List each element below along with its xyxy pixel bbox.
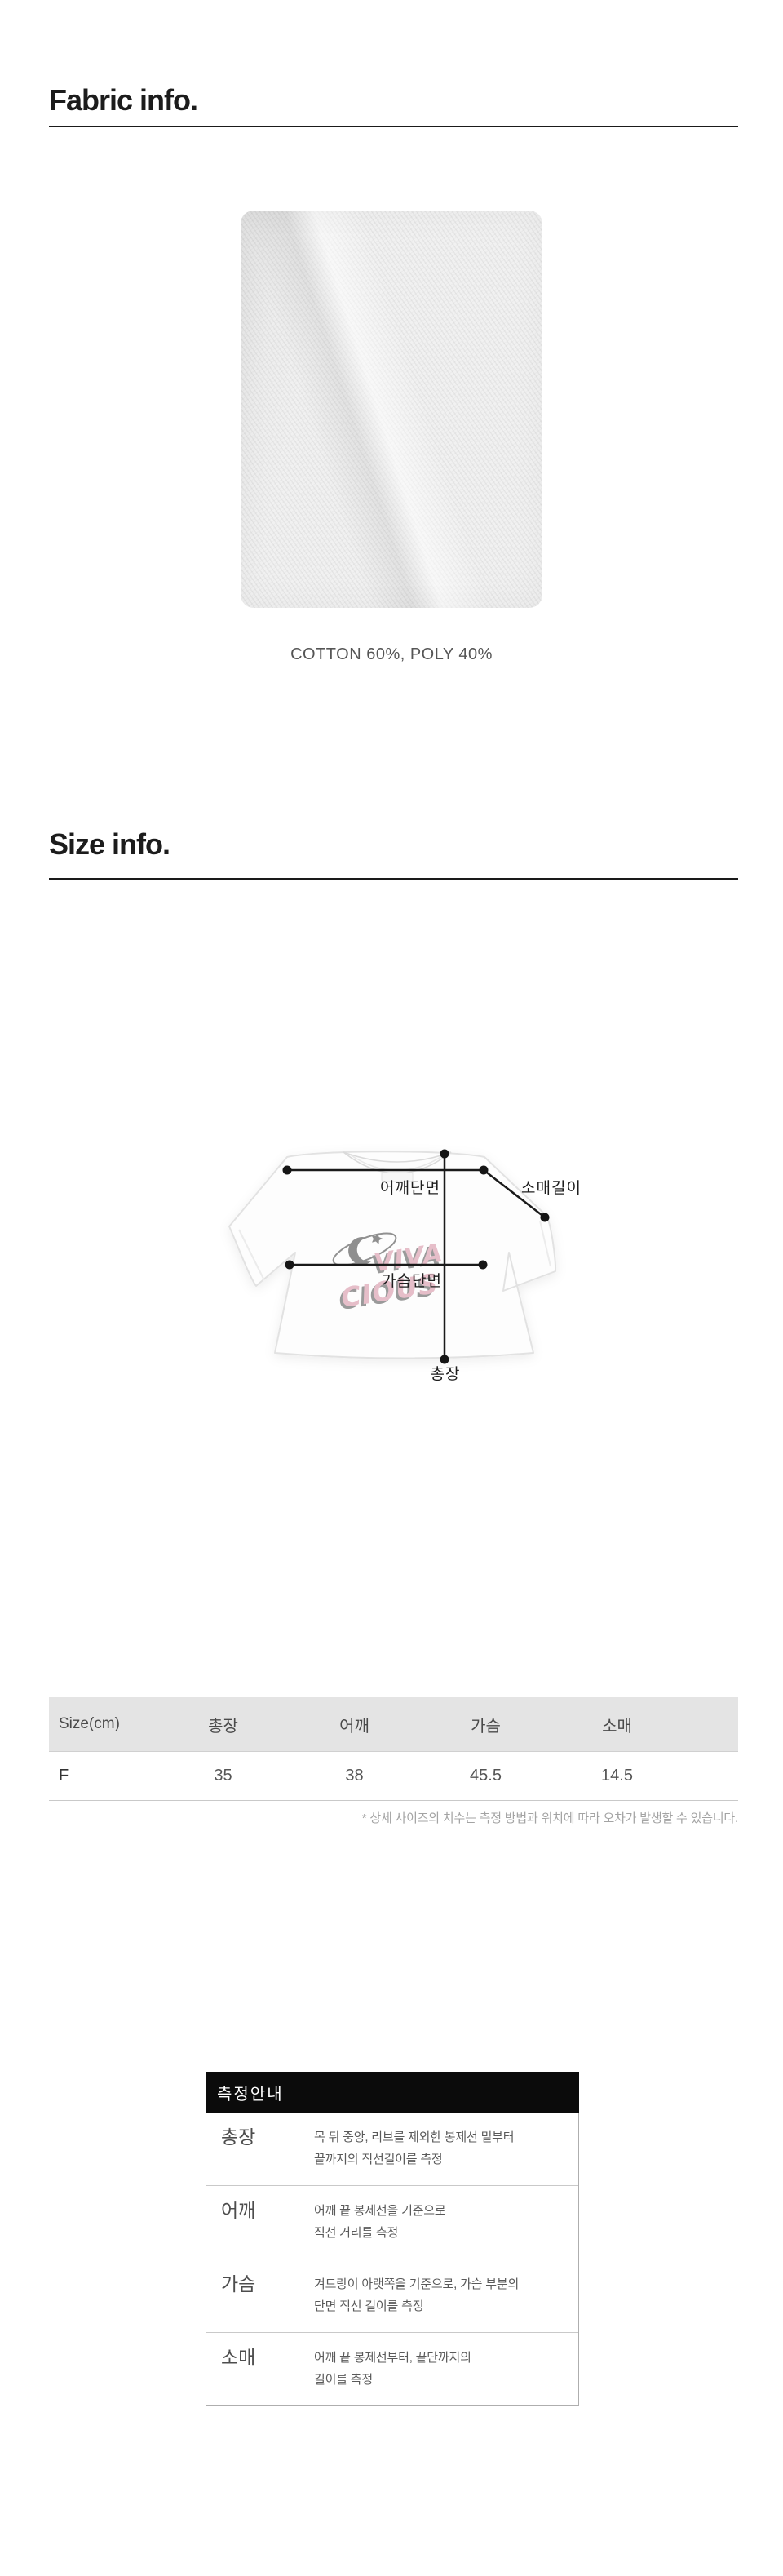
measurement-guide: 측정안내 총장 목 뒤 중앙, 리브를 제외한 봉제선 밑부터 끝까지의 직선길… — [206, 2072, 579, 2406]
guide-row-chest: 가슴 겨드랑이 아랫쪽을 기준으로, 가슴 부분의 단면 직선 길이를 측정 — [206, 2259, 578, 2333]
fabric-section-divider — [49, 126, 738, 127]
guide-desc-line: 직선 거리를 측정 — [314, 2222, 578, 2244]
measurement-guide-body: 총장 목 뒤 중앙, 리브를 제외한 봉제선 밑부터 끝까지의 직선길이를 측정… — [206, 2113, 579, 2406]
guide-row-sleeve: 소매 어깨 끝 봉제선부터, 끝단까지의 길이를 측정 — [206, 2333, 578, 2405]
size-table-header-row: Size(cm) 총장 어깨 가슴 소매 — [49, 1697, 738, 1752]
guide-desc-line: 겨드랑이 아랫쪽을 기준으로, 가슴 부분의 — [314, 2273, 578, 2295]
size-diagram: VIVA VIVA CIOUS CIOUS 어깨단면 소매길이 가슴단면 총장 — [204, 1134, 595, 1395]
guide-desc-line: 어깨 끝 봉제선을 기준으로 — [314, 2200, 578, 2222]
sleeve-value: 14.5 — [551, 1767, 683, 1785]
size-disclaimer-text: * 상세 사이즈의 치수는 측정 방법과 위치에 따라 오차가 발생할 수 있습… — [362, 1809, 738, 1826]
label-sleeve-length: 소매길이 — [521, 1179, 582, 1197]
col-header-length: 총장 — [157, 1713, 289, 1736]
col-header-sleeve: 소매 — [551, 1713, 683, 1736]
guide-desc-line: 목 뒤 중앙, 리브를 제외한 봉제선 밑부터 — [314, 2126, 578, 2148]
guide-description: 겨드랑이 아랫쪽을 기준으로, 가슴 부분의 단면 직선 길이를 측정 — [314, 2273, 578, 2317]
col-header-chest: 가슴 — [420, 1713, 551, 1736]
product-detail-page: Fabric info. COTTON 60%, POLY 40% Size i… — [0, 0, 783, 2576]
guide-row-length: 총장 목 뒤 중앙, 리브를 제외한 봉제선 밑부터 끝까지의 직선길이를 측정 — [206, 2113, 578, 2186]
size-section-divider — [49, 878, 738, 880]
guide-label: 가슴 — [206, 2273, 314, 2317]
chest-value: 45.5 — [420, 1767, 551, 1785]
guide-row-shoulder: 어깨 어깨 끝 봉제선을 기준으로 직선 거리를 측정 — [206, 2186, 578, 2259]
measurement-guide-title: 측정안내 — [206, 2072, 579, 2113]
guide-desc-line: 어깨 끝 봉제선부터, 끝단까지의 — [314, 2347, 578, 2369]
guide-label: 소매 — [206, 2347, 314, 2391]
fabric-info-title: Fabric info. — [49, 83, 197, 117]
fabric-composition-text: COTTON 60%, POLY 40% — [0, 645, 783, 664]
guide-label: 어깨 — [206, 2200, 314, 2244]
guide-desc-line: 단면 직선 길이를 측정 — [314, 2295, 578, 2317]
fabric-swatch-image — [241, 211, 542, 608]
guide-label: 총장 — [206, 2126, 314, 2170]
label-total-length: 총장 — [431, 1365, 461, 1383]
size-table-row-f: F 35 38 45.5 14.5 — [49, 1752, 738, 1801]
guide-desc-line: 끝까지의 직선길이를 측정 — [314, 2148, 578, 2170]
label-shoulder-width: 어깨단면 — [380, 1179, 440, 1197]
col-header-shoulder: 어깨 — [289, 1713, 420, 1736]
shoulder-value: 38 — [289, 1767, 420, 1785]
size-info-title: Size info. — [49, 827, 170, 862]
guide-desc-line: 길이를 측정 — [314, 2369, 578, 2391]
guide-description: 어깨 끝 봉제선을 기준으로 직선 거리를 측정 — [314, 2200, 578, 2244]
guide-description: 어깨 끝 봉제선부터, 끝단까지의 길이를 측정 — [314, 2347, 578, 2391]
length-value: 35 — [157, 1767, 289, 1785]
size-value: F — [49, 1767, 157, 1785]
label-chest-width: 가슴단면 — [382, 1272, 442, 1290]
size-spec-table: Size(cm) 총장 어깨 가슴 소매 F 35 38 45.5 14.5 — [49, 1697, 738, 1801]
col-header-size: Size(cm) — [49, 1715, 157, 1733]
guide-description: 목 뒤 중앙, 리브를 제외한 봉제선 밑부터 끝까지의 직선길이를 측정 — [314, 2126, 578, 2170]
